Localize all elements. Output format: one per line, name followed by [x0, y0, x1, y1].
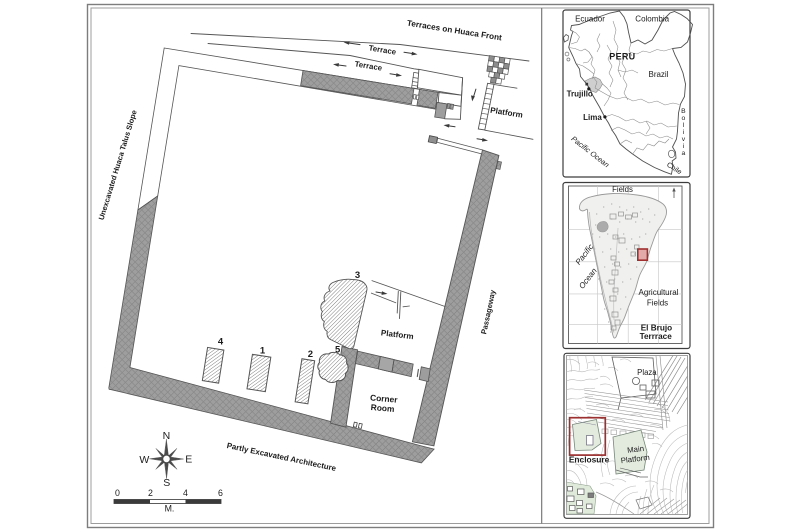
svg-text:S: S — [163, 477, 170, 489]
svg-text:Ecuador: Ecuador — [575, 14, 605, 23]
svg-text:W: W — [139, 454, 149, 466]
svg-text:Terraces on Huaca Front: Terraces on Huaca Front — [406, 19, 502, 43]
svg-text:Passageway: Passageway — [479, 288, 497, 335]
svg-text:E: E — [185, 454, 192, 466]
svg-text:Platform: Platform — [490, 106, 524, 120]
svg-text:Lima: Lima — [583, 113, 602, 122]
svg-text:1: 1 — [260, 346, 266, 357]
svg-text:Unexcavated Huaca Talus Slope: Unexcavated Huaca Talus Slope — [97, 109, 139, 221]
svg-text:v: v — [682, 136, 686, 143]
svg-text:Trujillo: Trujillo — [567, 90, 593, 99]
svg-text:M.: M. — [165, 504, 175, 514]
svg-text:0: 0 — [115, 488, 120, 498]
svg-text:Platform: Platform — [380, 328, 414, 341]
svg-text:4: 4 — [183, 488, 188, 498]
svg-text:Enclosure: Enclosure — [569, 455, 610, 465]
svg-text:a: a — [682, 150, 686, 157]
svg-text:Brazil: Brazil — [648, 70, 668, 79]
svg-text:Colombia: Colombia — [635, 15, 669, 24]
svg-text:Terrrace: Terrrace — [640, 332, 673, 341]
svg-text:6: 6 — [218, 488, 223, 498]
svg-text:N: N — [163, 430, 171, 442]
svg-text:Partly Excavated Architecture: Partly Excavated Architecture — [226, 441, 338, 473]
svg-text:Fields: Fields — [647, 298, 668, 307]
svg-text:2: 2 — [148, 488, 153, 498]
svg-text:PERU: PERU — [609, 51, 635, 61]
svg-text:5: 5 — [335, 345, 341, 356]
svg-text:Room: Room — [370, 402, 395, 414]
svg-text:B: B — [681, 108, 686, 115]
svg-text:Plaza: Plaza — [637, 368, 657, 377]
svg-text:4: 4 — [218, 337, 224, 348]
svg-text:Agricultural: Agricultural — [638, 288, 678, 297]
svg-text:o: o — [682, 115, 686, 122]
svg-text:Terrace: Terrace — [368, 43, 397, 56]
svg-text:2: 2 — [308, 349, 313, 360]
svg-text:3: 3 — [355, 270, 360, 281]
svg-text:Fields: Fields — [612, 185, 633, 194]
